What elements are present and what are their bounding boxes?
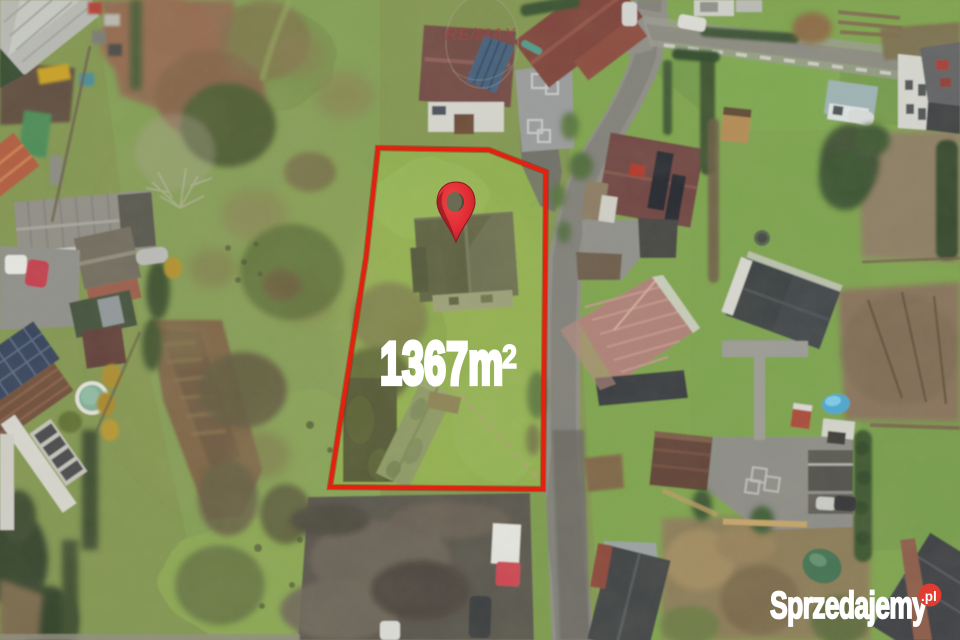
svg-text:2: 2 [502,340,517,376]
svg-text:1367m: 1367m [380,330,503,397]
svg-text:Sprzedajemy: Sprzedajemy [770,583,928,626]
svg-text:RE/MAX: RE/MAX [445,24,517,44]
svg-text:.pl: .pl [921,589,937,604]
